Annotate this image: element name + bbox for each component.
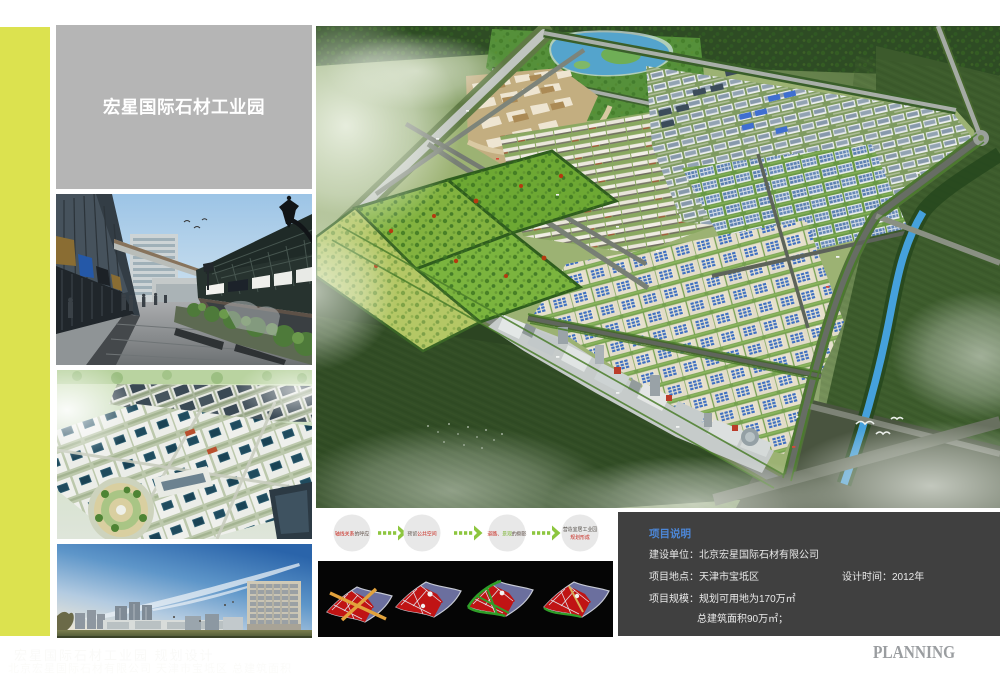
svg-text:道路、景观的倒影: 道路、景观的倒影 (487, 531, 526, 538)
svg-text:营造宜居工业园: 营造宜居工业园 (563, 526, 597, 533)
svg-text:预留公共空间: 预留公共空间 (407, 531, 436, 538)
svg-text:规划形成: 规划形成 (570, 534, 590, 541)
svg-text:轴线关系的呼应: 轴线关系的呼应 (335, 531, 369, 538)
